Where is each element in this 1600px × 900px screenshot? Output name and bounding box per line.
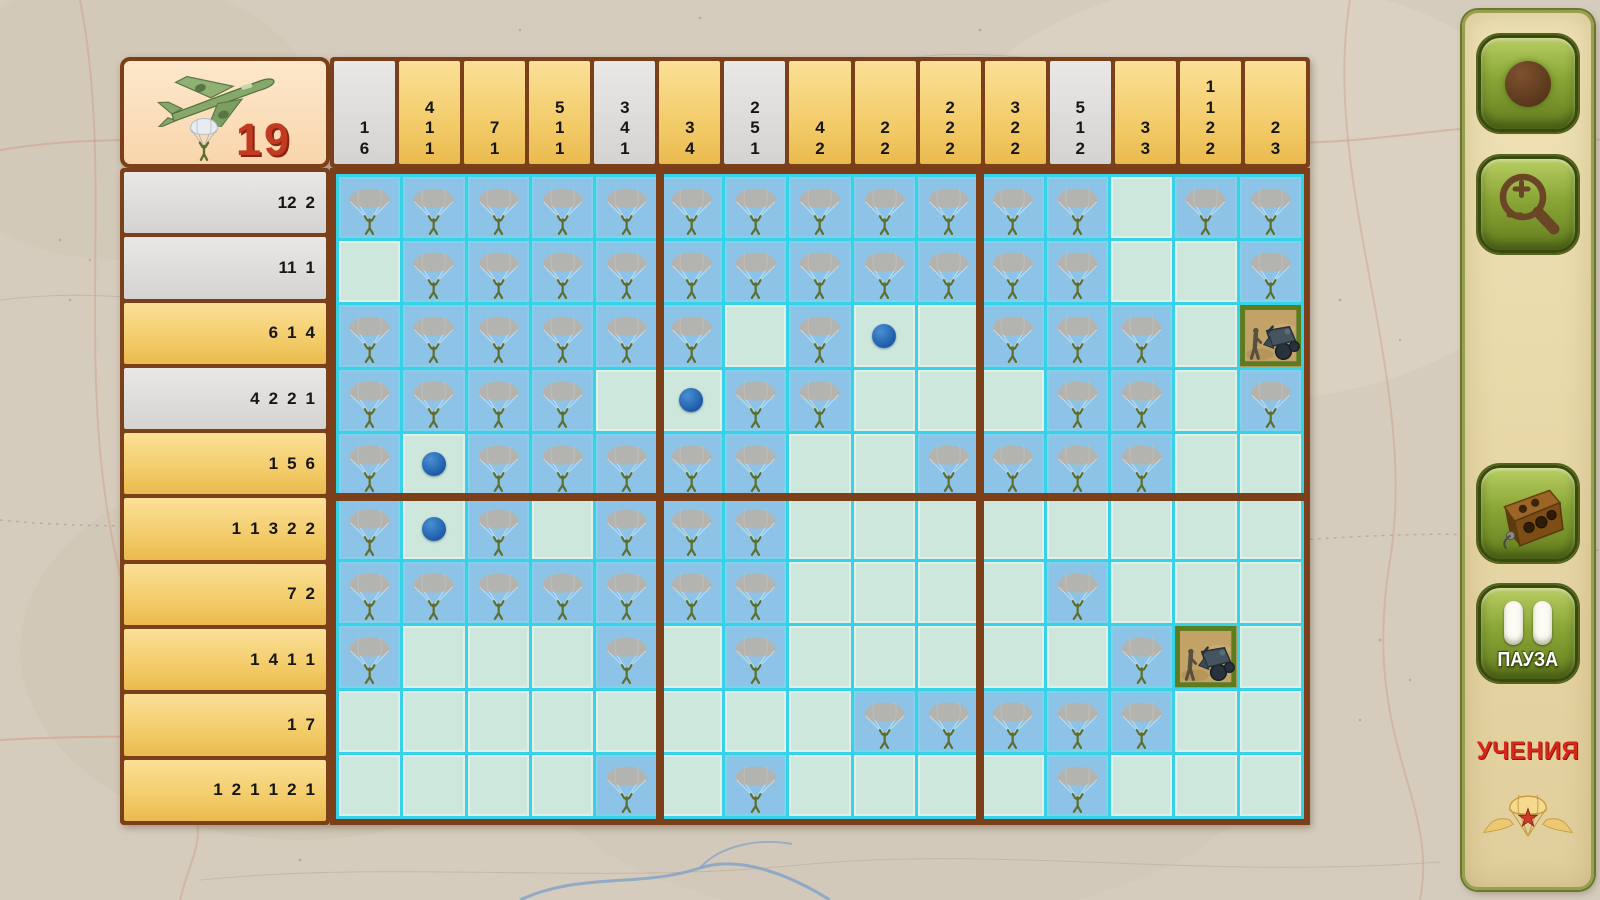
paratrooper-icon — [1047, 562, 1108, 623]
paratrooper-icon — [661, 177, 722, 238]
grid-cell[interactable] — [532, 562, 593, 623]
grid-cell[interactable] — [1111, 562, 1172, 623]
grid-cell[interactable] — [1047, 177, 1108, 238]
grid-cell[interactable] — [1111, 755, 1172, 816]
row-clue: 121121 — [124, 760, 326, 821]
grid-cell[interactable] — [339, 755, 400, 816]
grid-cell[interactable] — [1047, 305, 1108, 366]
grid-cell[interactable] — [918, 562, 979, 623]
grid-cell[interactable] — [1047, 562, 1108, 623]
paratrooper-icon — [1240, 177, 1301, 238]
grid-cell[interactable] — [982, 370, 1043, 431]
grid-cell[interactable] — [1047, 241, 1108, 302]
magnifier-plus-minus-icon — [1491, 168, 1565, 242]
paratrooper-icon — [596, 434, 657, 495]
paratrooper-icon — [725, 562, 786, 623]
paratrooper-icon — [1111, 626, 1172, 687]
blue-dot-mark — [679, 388, 703, 412]
paratrooper-icon — [1111, 434, 1172, 495]
column-clue: 23 — [1245, 61, 1306, 164]
paratrooper-icon — [918, 434, 979, 495]
grid-cell[interactable] — [1175, 370, 1236, 431]
paratrooper-icon — [1111, 691, 1172, 752]
brown-dot-marker-icon — [1505, 61, 1551, 107]
paratrooper-icon — [596, 562, 657, 623]
grid-cell[interactable] — [918, 755, 979, 816]
row-clue: 11322 — [124, 498, 326, 559]
paratrooper-icon — [468, 177, 529, 238]
grid-cell[interactable] — [854, 755, 915, 816]
grid-cell[interactable] — [1240, 241, 1301, 302]
grid-cell[interactable] — [1111, 177, 1172, 238]
grid-cell[interactable] — [661, 755, 722, 816]
paratrooper-icon — [403, 562, 464, 623]
row-clue: 72 — [124, 564, 326, 625]
column-clue: 16 — [334, 61, 395, 164]
paratrooper-icon — [982, 241, 1043, 302]
grid-cell[interactable] — [532, 498, 593, 559]
grid-cell[interactable] — [1047, 755, 1108, 816]
grid-cell[interactable] — [596, 691, 657, 752]
row-clue: 122 — [124, 172, 326, 233]
grid-cell[interactable] — [1111, 434, 1172, 495]
grid-cell[interactable] — [1240, 691, 1301, 752]
grid-cell[interactable] — [1111, 305, 1172, 366]
grid-cell[interactable] — [1111, 691, 1172, 752]
paratrooper-icon — [596, 755, 657, 816]
paratrooper-icon — [468, 562, 529, 623]
column-clue: 1122 — [1180, 61, 1241, 164]
paratrooper-icon — [725, 241, 786, 302]
grid-cell[interactable] — [1175, 755, 1236, 816]
column-clue: 71 — [464, 61, 525, 164]
grid-cell[interactable] — [789, 177, 850, 238]
paratrooper-icon — [468, 305, 529, 366]
paratrooper-icon — [532, 177, 593, 238]
paratrooper-icon — [1047, 755, 1108, 816]
row-clue: 111 — [124, 237, 326, 298]
paratrooper-icon — [725, 177, 786, 238]
airborne-parachute-star-badge — [1482, 785, 1574, 847]
grid-cell[interactable] — [1047, 370, 1108, 431]
paratrooper-icon — [982, 434, 1043, 495]
pause-button[interactable]: ПАУЗА — [1478, 585, 1578, 682]
pause-bars-icon — [1499, 601, 1557, 645]
paratrooper-icon — [854, 691, 915, 752]
paratrooper-icon — [532, 370, 593, 431]
paratrooper-icon — [339, 305, 400, 366]
column-clue: 222 — [920, 61, 981, 164]
paratrooper-icon — [982, 305, 1043, 366]
paratrooper-icon — [789, 241, 850, 302]
grid-cell[interactable] — [1240, 305, 1301, 366]
grid-cell[interactable] — [339, 241, 400, 302]
vehicle-unit-icon — [1240, 305, 1301, 366]
grid-cell[interactable] — [532, 691, 593, 752]
paratrooper-icon — [789, 370, 850, 431]
grid-cell[interactable] — [339, 370, 400, 431]
grid-cell[interactable] — [789, 434, 850, 495]
paratrooper-icon — [468, 498, 529, 559]
row-clue: 4221 — [124, 368, 326, 429]
grid-cell[interactable] — [725, 305, 786, 366]
paratrooper-icon — [403, 177, 464, 238]
grid-cell[interactable] — [1240, 370, 1301, 431]
column-clue: 22 — [855, 61, 916, 164]
grid-cell[interactable] — [596, 177, 657, 238]
grid-cell[interactable] — [918, 434, 979, 495]
paratrooper-icon — [1111, 305, 1172, 366]
grid-cell[interactable] — [403, 305, 464, 366]
grid-cell[interactable] — [661, 691, 722, 752]
grid-cell[interactable] — [532, 755, 593, 816]
paratrooper-icon — [854, 177, 915, 238]
column-clue: 34 — [659, 61, 720, 164]
paratrooper-icon — [403, 305, 464, 366]
paratrooper-icon — [789, 177, 850, 238]
grid-cell[interactable] — [596, 755, 657, 816]
row-clue: 1411 — [124, 629, 326, 690]
paratrooper-icon — [468, 434, 529, 495]
grid-cell[interactable] — [918, 305, 979, 366]
grid-cell[interactable] — [789, 626, 850, 687]
paratrooper-icon — [532, 305, 593, 366]
grid-cell[interactable] — [468, 241, 529, 302]
grid-cell[interactable] — [661, 370, 722, 431]
grid-cell[interactable] — [1111, 498, 1172, 559]
grid-cell[interactable] — [1175, 562, 1236, 623]
grid-cell[interactable] — [982, 177, 1043, 238]
paratrooper-icon — [661, 562, 722, 623]
paratrooper-icon — [918, 691, 979, 752]
paratrooper-icon — [596, 498, 657, 559]
column-clue: 42 — [789, 61, 850, 164]
grid-cell[interactable] — [789, 241, 850, 302]
grid-cell[interactable] — [789, 498, 850, 559]
column-clue: 411 — [399, 61, 460, 164]
blue-dot-mark — [872, 324, 896, 348]
grid-cell[interactable] — [725, 691, 786, 752]
paratrooper-counter-icon — [186, 112, 222, 162]
grid-cell[interactable] — [596, 370, 657, 431]
grid-cell[interactable] — [1175, 626, 1236, 687]
grid-cell[interactable] — [532, 305, 593, 366]
grid-cell[interactable] — [403, 434, 464, 495]
grid-cell[interactable] — [918, 498, 979, 559]
paratrooper-icon — [725, 498, 786, 559]
grid-cell[interactable] — [725, 626, 786, 687]
row-clue: 156 — [124, 433, 326, 494]
paratrooper-icon — [1240, 370, 1301, 431]
grid-cell[interactable] — [532, 434, 593, 495]
paratrooper-icon — [661, 305, 722, 366]
grid-cell[interactable] — [982, 434, 1043, 495]
grid-cell[interactable] — [532, 370, 593, 431]
grid-cell[interactable] — [596, 626, 657, 687]
paratrooper-icon — [1047, 241, 1108, 302]
grid-cell[interactable] — [725, 241, 786, 302]
paratrooper-icon — [532, 241, 593, 302]
grid-cell[interactable] — [403, 177, 464, 238]
column-clue: 511 — [529, 61, 590, 164]
grid-cell[interactable] — [1111, 626, 1172, 687]
grid-cell[interactable] — [918, 370, 979, 431]
grid-cell[interactable] — [918, 177, 979, 238]
grid-cell[interactable] — [468, 691, 529, 752]
grid-cell[interactable] — [982, 755, 1043, 816]
grid-cell[interactable] — [854, 498, 915, 559]
paratrooper-icon — [661, 498, 722, 559]
grid-cell[interactable] — [1047, 498, 1108, 559]
grid-cell[interactable] — [661, 562, 722, 623]
grid-cell[interactable] — [661, 434, 722, 495]
grid-cell[interactable] — [789, 691, 850, 752]
grid-cell[interactable] — [1047, 434, 1108, 495]
grid-cell[interactable] — [1111, 241, 1172, 302]
grid-cell[interactable] — [339, 177, 400, 238]
counter-panel: 19 — [120, 57, 330, 168]
grid-cell[interactable] — [725, 755, 786, 816]
paratrooper-icon — [403, 370, 464, 431]
paratrooper-icon — [1175, 177, 1236, 238]
paratrooper-icon — [1047, 691, 1108, 752]
zoom-button[interactable] — [1478, 156, 1578, 253]
grid-cell[interactable] — [1175, 305, 1236, 366]
grid-cell[interactable] — [661, 241, 722, 302]
grid-cell[interactable] — [725, 434, 786, 495]
grid-cell[interactable] — [1240, 434, 1301, 495]
paratrooper-icon — [789, 305, 850, 366]
grid-cell[interactable] — [596, 434, 657, 495]
remaining-paratroopers-count: 19 — [236, 119, 292, 162]
grid-cell[interactable] — [1240, 755, 1301, 816]
grid-cell[interactable] — [918, 691, 979, 752]
grid-cell[interactable] — [339, 498, 400, 559]
paratrooper-icon — [661, 434, 722, 495]
paratrooper-icon — [918, 241, 979, 302]
grid-cell[interactable] — [339, 626, 400, 687]
grid-cell[interactable] — [1175, 241, 1236, 302]
column-clues: 164117151134134251422222232251233112223 — [330, 57, 1310, 168]
grid-cell[interactable] — [532, 177, 593, 238]
column-clue: 33 — [1115, 61, 1176, 164]
paratrooper-icon — [918, 177, 979, 238]
paratrooper-icon — [725, 755, 786, 816]
grid-cell[interactable] — [661, 177, 722, 238]
paratrooper-icon — [532, 562, 593, 623]
paratrooper-icon — [725, 434, 786, 495]
paratrooper-icon — [596, 305, 657, 366]
grid-cell[interactable] — [854, 241, 915, 302]
paratrooper-icon — [596, 177, 657, 238]
grid-cell[interactable] — [661, 305, 722, 366]
grid-cell[interactable] — [982, 562, 1043, 623]
grid-cell[interactable] — [982, 626, 1043, 687]
grid-cell[interactable] — [339, 562, 400, 623]
grid-cell[interactable] — [532, 241, 593, 302]
grid-cell[interactable] — [854, 370, 915, 431]
grid-cell[interactable] — [403, 498, 464, 559]
grid-cell[interactable] — [532, 626, 593, 687]
paratrooper-icon — [725, 626, 786, 687]
grid-cell[interactable] — [854, 626, 915, 687]
paratrooper-icon — [982, 177, 1043, 238]
grid-cell[interactable] — [596, 498, 657, 559]
grid-cell[interactable] — [339, 691, 400, 752]
grid-cell[interactable] — [468, 434, 529, 495]
paratrooper-icon — [403, 241, 464, 302]
grid-cell[interactable] — [468, 177, 529, 238]
paratrooper-icon — [339, 626, 400, 687]
grid-cell[interactable] — [1175, 434, 1236, 495]
mode-label: УЧЕНИЯ — [1468, 737, 1589, 766]
grid-cell[interactable] — [403, 626, 464, 687]
grid-cell[interactable] — [789, 562, 850, 623]
row-clue: 17 — [124, 694, 326, 755]
column-clue: 512 — [1050, 61, 1111, 164]
paratrooper-icon — [854, 241, 915, 302]
game-screen: 19 1641171511341342514222222322512331122… — [0, 0, 1600, 900]
paratrooper-icon — [1047, 370, 1108, 431]
column-clue: 322 — [985, 61, 1046, 164]
grid-cell[interactable] — [468, 305, 529, 366]
grid-cell[interactable] — [1047, 691, 1108, 752]
radio-button[interactable] — [1478, 465, 1578, 562]
puzzle-board: 19 1641171511341342514222222322512331122… — [120, 57, 1315, 828]
grid-cell[interactable] — [725, 177, 786, 238]
paratrooper-icon — [339, 562, 400, 623]
grid-cell[interactable] — [468, 755, 529, 816]
column-clue: 251 — [724, 61, 785, 164]
grid-cell[interactable] — [982, 498, 1043, 559]
grid-cell[interactable] — [854, 434, 915, 495]
paratrooper-icon — [1240, 241, 1301, 302]
paratrooper-icon — [725, 370, 786, 431]
grid-cell[interactable] — [596, 305, 657, 366]
grid-cell[interactable] — [1240, 626, 1301, 687]
paratrooper-icon — [982, 691, 1043, 752]
paratrooper-icon — [339, 370, 400, 431]
mark-tool-button[interactable] — [1478, 35, 1578, 132]
grid-cell[interactable] — [596, 562, 657, 623]
vehicle-unit-icon — [1175, 626, 1236, 687]
paratrooper-icon — [468, 370, 529, 431]
grid-cell[interactable] — [1240, 498, 1301, 559]
grid-cell[interactable] — [854, 691, 915, 752]
grid-cell[interactable] — [725, 498, 786, 559]
grid-cell[interactable] — [1175, 177, 1236, 238]
pause-button-label: ПАУЗА — [1498, 649, 1559, 672]
paratrooper-icon — [339, 177, 400, 238]
grid-cell[interactable] — [1047, 626, 1108, 687]
paratrooper-icon — [339, 434, 400, 495]
blue-dot-mark — [422, 517, 446, 541]
grid-cell[interactable] — [789, 370, 850, 431]
paratrooper-icon — [1111, 370, 1172, 431]
paratrooper-icon — [532, 434, 593, 495]
control-panel: ПАУЗА УЧЕНИЯ — [1462, 10, 1594, 890]
grid-cell[interactable] — [789, 305, 850, 366]
paratrooper-icon — [596, 626, 657, 687]
grid-cell[interactable] — [982, 305, 1043, 366]
column-clue: 341 — [594, 61, 655, 164]
grid-cell[interactable] — [403, 691, 464, 752]
grid-cell[interactable] — [918, 626, 979, 687]
paratrooper-icon — [1047, 305, 1108, 366]
grid-cell[interactable] — [661, 498, 722, 559]
grid-cell[interactable] — [854, 305, 915, 366]
puzzle-grid — [330, 168, 1310, 825]
grid-cell[interactable] — [661, 626, 722, 687]
paratrooper-icon — [596, 241, 657, 302]
grid-cell[interactable] — [468, 562, 529, 623]
blue-dot-mark — [422, 452, 446, 476]
row-clue: 614 — [124, 303, 326, 364]
paratrooper-icon — [1047, 434, 1108, 495]
grid-cell[interactable] — [403, 755, 464, 816]
grid-cell[interactable] — [468, 626, 529, 687]
grid-cell[interactable] — [1175, 691, 1236, 752]
grid-cell[interactable] — [403, 370, 464, 431]
grid-cell[interactable] — [982, 241, 1043, 302]
paratrooper-icon — [339, 498, 400, 559]
grid-cell[interactable] — [1175, 498, 1236, 559]
grid-cell[interactable] — [339, 305, 400, 366]
grid-cell[interactable] — [468, 498, 529, 559]
grid-cell[interactable] — [1240, 562, 1301, 623]
group-separator-horizontal — [336, 493, 1304, 501]
grid-cell[interactable] — [789, 755, 850, 816]
paratrooper-icon — [661, 241, 722, 302]
paratrooper-icon — [468, 241, 529, 302]
grid-cell[interactable] — [854, 562, 915, 623]
grid-cell[interactable] — [854, 177, 915, 238]
paratrooper-icon — [1047, 177, 1108, 238]
grid-cell[interactable] — [403, 241, 464, 302]
grid-cell[interactable] — [468, 370, 529, 431]
grid-cell[interactable] — [725, 370, 786, 431]
grid-cell[interactable] — [725, 562, 786, 623]
grid-cell[interactable] — [596, 241, 657, 302]
grid-cell[interactable] — [982, 691, 1043, 752]
grid-cell[interactable] — [1111, 370, 1172, 431]
grid-cell[interactable] — [339, 434, 400, 495]
row-clues: 12211161442211561132272141117121121 — [120, 168, 330, 825]
grid-cell[interactable] — [1240, 177, 1301, 238]
grid-cell[interactable] — [918, 241, 979, 302]
grid-cell[interactable] — [403, 562, 464, 623]
field-radio-icon — [1490, 476, 1566, 552]
